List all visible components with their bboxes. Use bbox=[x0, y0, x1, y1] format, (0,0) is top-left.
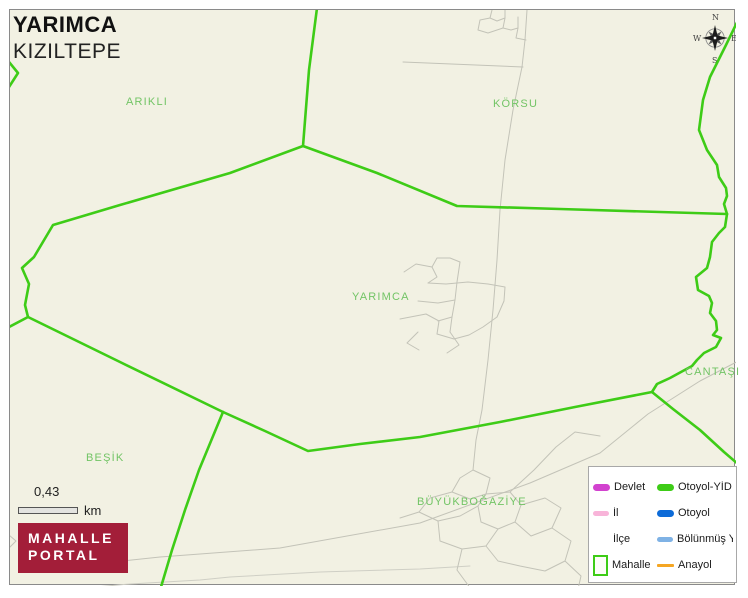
legend-label: Otoyol bbox=[678, 507, 710, 519]
legend-swatch-line-thick bbox=[593, 484, 610, 491]
compass-w-label: W bbox=[693, 34, 702, 43]
place-label-yarimca: YARIMCA bbox=[352, 291, 410, 303]
map-page: N E S W YARIMCA KIZILTEPE ARIKLI KÖRSU Y… bbox=[0, 0, 748, 598]
place-label-arikli: ARIKLI bbox=[126, 96, 168, 108]
scale-unit: km bbox=[84, 503, 101, 518]
legend-item: İl bbox=[593, 507, 655, 519]
legend-swatch-line-thin bbox=[657, 564, 674, 567]
place-label-besik: BEŞİK bbox=[86, 452, 124, 464]
logo-line-2: PORTAL bbox=[28, 547, 128, 564]
legend-swatch-line-medium bbox=[657, 537, 673, 542]
legend-item: Otoyol-YİD bbox=[657, 481, 733, 493]
legend: DevletOtoyol-YİDİlOtoyolİlçeBölünmüş YMa… bbox=[588, 466, 737, 583]
legend-item: Anayol bbox=[657, 559, 733, 571]
page-title: YARIMCA bbox=[13, 12, 121, 38]
legend-label: Devlet bbox=[614, 481, 645, 493]
legend-label: Mahalle bbox=[612, 559, 651, 571]
scale-value: 0,43 bbox=[34, 484, 59, 499]
legend-item: Mahalle bbox=[593, 555, 655, 576]
place-label-cantasi: CANTAŞI bbox=[685, 366, 740, 378]
legend-label: İl bbox=[613, 507, 619, 519]
legend-item: Devlet bbox=[593, 481, 655, 493]
legend-label: İlçe bbox=[613, 533, 630, 545]
legend-item: İlçe bbox=[593, 533, 655, 545]
scale-bar-rect bbox=[18, 507, 78, 514]
legend-swatch-box bbox=[593, 555, 608, 576]
place-label-buyukbogaziye: BÜYÜKBOĞAZİYE bbox=[417, 496, 527, 508]
legend-item: Otoyol bbox=[657, 507, 733, 519]
legend-label: Bölünmüş Y bbox=[677, 533, 733, 545]
legend-label: Otoyol-YİD bbox=[678, 481, 732, 493]
legend-swatch-line-thick bbox=[657, 510, 674, 517]
legend-swatch-line-none bbox=[593, 537, 609, 541]
legend-swatch-line-thick bbox=[657, 484, 674, 491]
compass-n-label: N bbox=[712, 13, 719, 22]
place-label-korsu: KÖRSU bbox=[493, 98, 538, 110]
title-block: YARIMCA KIZILTEPE bbox=[13, 12, 121, 64]
legend-swatch-line-medium bbox=[593, 511, 609, 516]
compass-rose: N E S W bbox=[693, 13, 737, 65]
page-subtitle: KIZILTEPE bbox=[13, 40, 121, 64]
legend-item: Bölünmüş Y bbox=[657, 533, 733, 545]
logo-line-1: MAHALLE bbox=[28, 530, 128, 547]
mahalle-portal-logo: MAHALLE PORTAL bbox=[18, 523, 128, 573]
compass-center bbox=[713, 36, 716, 39]
legend-label: Anayol bbox=[678, 559, 712, 571]
